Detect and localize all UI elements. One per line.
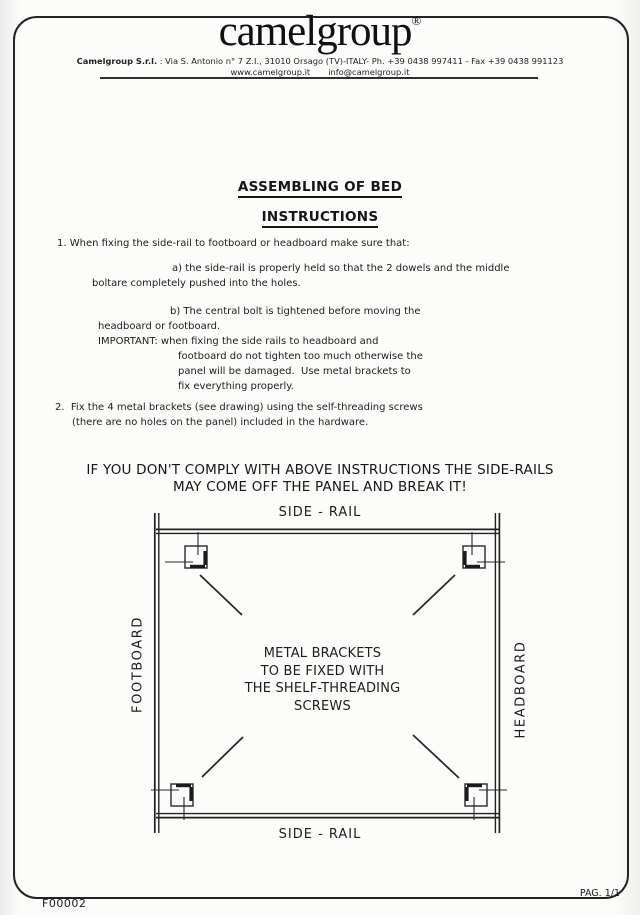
important-note-line-2: footboard do not tighten too much otherw… — [178, 350, 423, 363]
document-title: ASSEMBLING OF BED — [0, 176, 640, 198]
pointer-line-top-right — [413, 575, 455, 615]
page-number: PAG. 1/1 — [420, 888, 620, 899]
important-note-line-3: panel will be damaged. Use metal bracket… — [178, 365, 411, 378]
document-subtitle-text: INSTRUCTIONS — [262, 209, 379, 228]
important-note-line-4: fix everything properly. — [178, 380, 294, 393]
instruction-step-1: 1. When fixing the side-rail to footboar… — [57, 237, 410, 250]
company-address-line: Camelgroup S.r.l. : Via S. Antonio n° 7 … — [0, 56, 640, 66]
important-note-line-1: IMPORTANT: when fixing the side rails to… — [98, 335, 378, 348]
metal-bracket-top-left — [165, 532, 207, 568]
instruction-1b-line-1: b) The central bolt is tightened before … — [170, 305, 421, 318]
company-logo: camelgroup® — [0, 8, 640, 55]
warning-line-1: IF YOU DON'T COMPLY WITH ABOVE INSTRUCTI… — [0, 462, 640, 478]
logo-text: camelgroup — [219, 8, 412, 55]
instruction-1a-line-2: boltare completely pushed into the holes… — [92, 277, 301, 290]
document-title-text: ASSEMBLING OF BED — [238, 179, 402, 198]
registered-trademark-icon: ® — [412, 13, 422, 28]
company-email: info@camelgroup.it — [328, 67, 409, 77]
bed-frame-diagram — [110, 498, 540, 853]
instruction-step-2-line-1: 2. Fix the 4 metal brackets (see drawing… — [55, 401, 423, 414]
company-address-details: : Via S. Antonio n° 7 Z.I., 31010 Orsago… — [157, 56, 563, 66]
pointer-line-bottom-left — [202, 737, 243, 777]
metal-bracket-bottom-right — [465, 784, 507, 820]
metal-bracket-bottom-left — [151, 784, 193, 820]
document-subtitle: INSTRUCTIONS — [0, 206, 640, 228]
scanned-instruction-sheet: camelgroup® Camelgroup S.r.l. : Via S. A… — [0, 0, 640, 915]
form-code: F00002 — [42, 897, 86, 910]
company-contacts-line: www.camelgroup.itinfo@camelgroup.it — [0, 67, 640, 77]
header-divider — [100, 77, 538, 79]
instruction-step-2-line-2: (there are no holes on the panel) includ… — [72, 416, 368, 429]
company-website: www.camelgroup.it — [231, 67, 311, 77]
company-name: Camelgroup S.r.l. — [77, 56, 157, 66]
warning-line-2: MAY COME OFF THE PANEL AND BREAK IT! — [0, 479, 640, 495]
pointer-line-bottom-right — [413, 735, 459, 778]
instruction-1a-line-1: a) the side-rail is properly held so tha… — [172, 262, 510, 275]
pointer-line-top-left — [200, 575, 242, 615]
instruction-1b-line-2: headboard or footboard. — [98, 320, 220, 333]
